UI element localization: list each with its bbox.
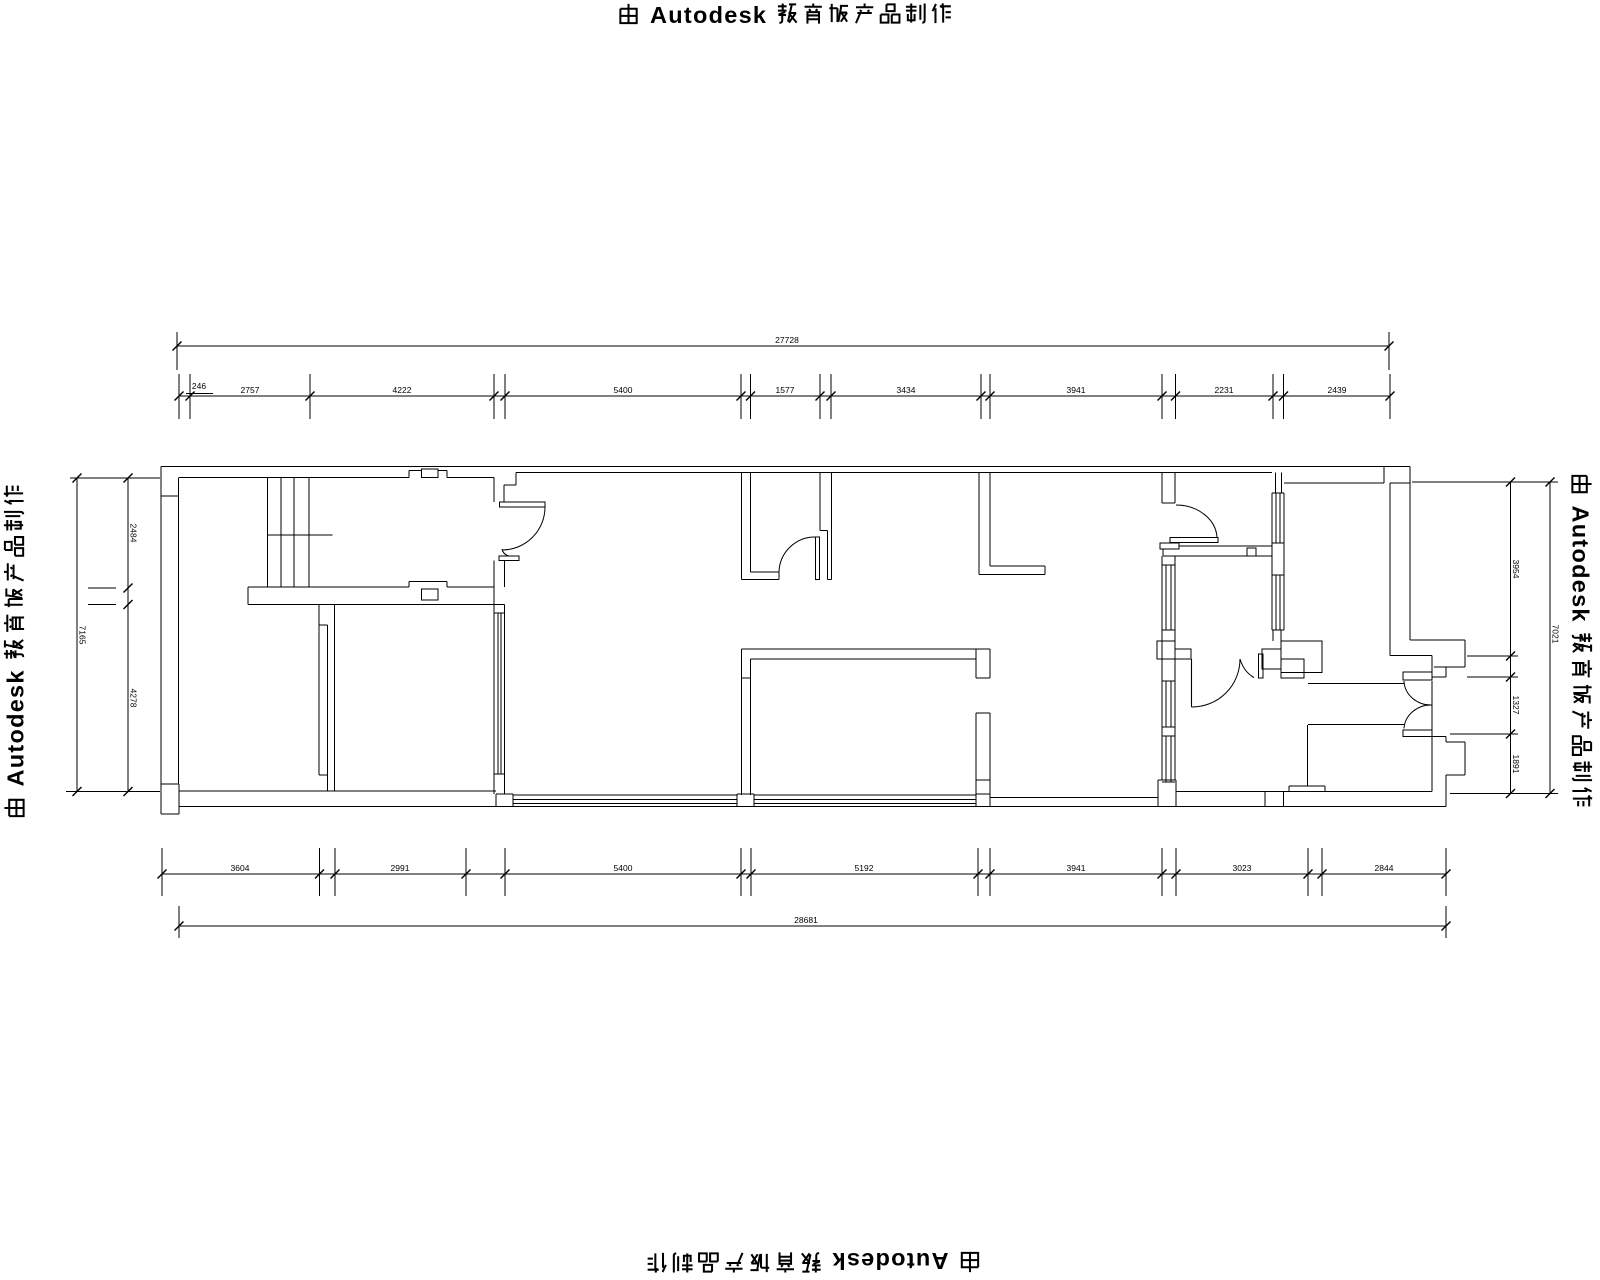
svg-text:3434: 3434 [897,385,916,395]
svg-text:5192: 5192 [855,863,874,873]
svg-text:5400: 5400 [614,863,633,873]
svg-text:2844: 2844 [1375,863,1394,873]
svg-text:4222: 4222 [393,385,412,395]
svg-text:2439: 2439 [1328,385,1347,395]
svg-text:1327: 1327 [1511,696,1521,715]
svg-text:2231: 2231 [1215,385,1234,395]
svg-text:3023: 3023 [1233,863,1252,873]
svg-text:7165: 7165 [78,626,88,645]
svg-text:246: 246 [192,381,206,391]
svg-text:2757: 2757 [241,385,260,395]
svg-text:7021: 7021 [1551,625,1561,644]
svg-text:3604: 3604 [231,863,250,873]
svg-text:3941: 3941 [1067,863,1086,873]
svg-text:3941: 3941 [1067,385,1086,395]
svg-text:1891: 1891 [1511,755,1521,774]
svg-text:2991: 2991 [391,863,410,873]
svg-text:5400: 5400 [614,385,633,395]
svg-text:1577: 1577 [776,385,795,395]
svg-text:27728: 27728 [775,335,799,345]
svg-text:4278: 4278 [129,689,139,708]
svg-text:3954: 3954 [1511,560,1521,579]
svg-text:2484: 2484 [129,524,139,543]
svg-text:28681: 28681 [794,915,818,925]
